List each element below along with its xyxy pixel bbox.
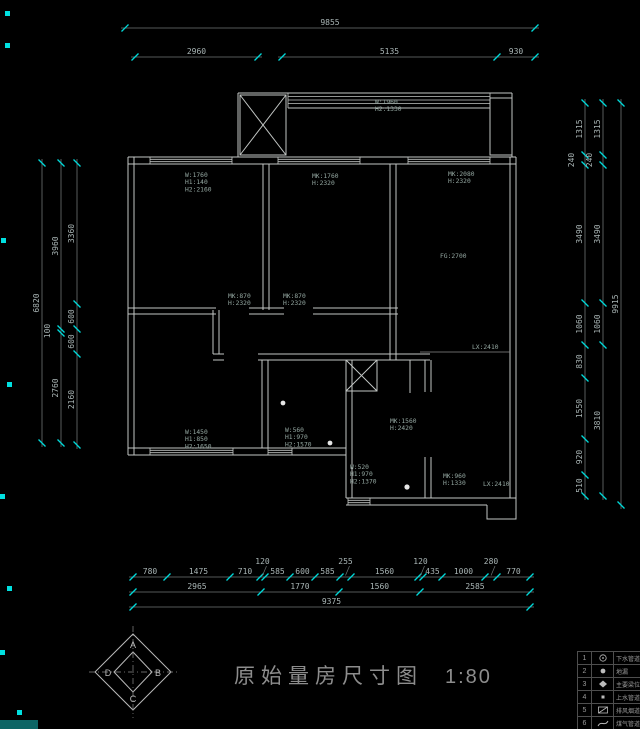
dimension-value: 585 xyxy=(270,567,285,576)
wall-left xyxy=(128,157,134,455)
dimension-value: 930 xyxy=(509,47,524,56)
dimension-value: 710 xyxy=(238,567,253,576)
label-line: H2:1330 xyxy=(375,106,402,113)
legend-row-number: 3 xyxy=(578,678,592,690)
window-small xyxy=(268,448,292,455)
drain-dot xyxy=(281,401,286,406)
label-line: H1:140 xyxy=(185,179,208,186)
window-bath xyxy=(348,498,370,505)
grip-points xyxy=(0,11,22,715)
label-small-door: MK:960H:1330 xyxy=(443,473,466,487)
label-line: H:2320 xyxy=(283,300,306,307)
dimension-value: 1560 xyxy=(370,582,389,591)
shaft-hatch xyxy=(240,95,286,155)
label-bath-window: W:520H1:970H2:1370 xyxy=(350,464,377,485)
grip-icon xyxy=(7,382,12,387)
dimension-value: 120 xyxy=(413,557,428,566)
dimension-leader xyxy=(263,566,267,576)
dimension-value: 120 xyxy=(255,557,270,566)
dimension-value: 240 xyxy=(585,153,594,168)
dimension-value: 435 xyxy=(425,567,440,576)
dimension-value: 585 xyxy=(320,567,335,576)
drawing-scale: 1:80 xyxy=(445,666,492,689)
dimension-value: 510 xyxy=(575,478,584,493)
legend-symbol-cell xyxy=(592,704,614,716)
legend-row: 5排风烟道 xyxy=(578,704,640,717)
grip-icon xyxy=(0,494,5,499)
wall-top xyxy=(128,157,516,164)
grip-icon xyxy=(17,710,22,715)
dimension-value: 600 xyxy=(67,334,76,349)
window-bed2 xyxy=(278,157,360,164)
grip-icon xyxy=(7,586,12,591)
wall-h-lower xyxy=(213,354,430,360)
drawing-title-row: 原始量房尺寸图 1:80 xyxy=(234,660,494,690)
dimension-value: 3960 xyxy=(51,236,60,255)
dim-top-overall: 9855 xyxy=(121,18,539,32)
compass-letter-b: B xyxy=(155,668,161,678)
compass-letter-a: A xyxy=(130,640,136,650)
label-line: LX:2410 xyxy=(483,481,510,488)
dimension-value: 1000 xyxy=(454,567,473,576)
legend-symbol-cell xyxy=(592,691,614,703)
legend-row-number: 1 xyxy=(578,652,592,664)
label-bed2-door: MK:870H:2320 xyxy=(283,293,306,307)
grip-icon xyxy=(5,11,10,16)
dimension-value: 600 xyxy=(295,567,310,576)
legend-symbol-cell xyxy=(592,717,614,729)
label-line: MK:1560 xyxy=(390,418,417,425)
dimension-value: 2960 xyxy=(187,47,206,56)
legend-symbol-cell xyxy=(592,678,614,690)
cad-viewport: 9855296051359306820396010027603360600600… xyxy=(0,0,640,729)
label-line: MK:1760 xyxy=(312,173,339,180)
label-line: H1:850 xyxy=(185,436,208,443)
dimension-value: 1560 xyxy=(375,567,394,576)
legend-row-label: 上水管道 xyxy=(614,691,640,703)
legend-row-number: 5 xyxy=(578,704,592,716)
dim-bottom-row2: 2965177015602585 xyxy=(129,582,534,596)
label-line: H2:1650 xyxy=(185,443,212,450)
label-beam-living: LX:2410 xyxy=(472,344,499,351)
label-beam-bottom: LX:2410 xyxy=(483,481,510,488)
dim-top-left: 2960 xyxy=(131,47,262,61)
beam-icon xyxy=(596,679,610,689)
dimension-value: 3490 xyxy=(593,224,602,243)
label-line: LX:2410 xyxy=(472,344,499,351)
dimension-value: 1060 xyxy=(575,314,584,333)
label-line: W:1960 xyxy=(375,99,398,106)
legend-symbol-cell xyxy=(592,665,614,677)
label-kitchen-door: MK:1560H:2420 xyxy=(390,418,417,432)
legend-table: 1下水管道2地漏3主要梁位置4上水管道5排风烟道6煤气管道 xyxy=(577,651,640,729)
taskbar-fragment xyxy=(0,720,38,729)
dimension-value: 1315 xyxy=(575,119,584,138)
dimension-value: 2585 xyxy=(465,582,484,591)
label-line: FG:2700 xyxy=(440,253,467,260)
wall-bath-right xyxy=(425,360,431,498)
label-living-window: MK:2080H:2320 xyxy=(448,171,475,185)
floorplan-canvas: 9855296051359306820396010027603360600600… xyxy=(0,0,640,729)
grip-icon xyxy=(0,650,5,655)
drawing-title: 原始量房尺寸图 xyxy=(234,660,423,690)
water-pipe-icon xyxy=(596,692,610,702)
dim-left-inner: 33606006002160 xyxy=(67,159,81,449)
label-line: H:1330 xyxy=(443,480,466,487)
label-line: H1:970 xyxy=(285,434,308,441)
drain-dot xyxy=(328,441,333,446)
grip-icon xyxy=(5,43,10,48)
grip-icon xyxy=(1,238,6,243)
dimension-value: 5135 xyxy=(380,47,399,56)
label-line: MK:870 xyxy=(228,293,251,300)
dim-top-right: 5135930 xyxy=(278,47,539,61)
label-line: MK:870 xyxy=(283,293,306,300)
label-line: H1:970 xyxy=(350,471,373,478)
drain-dot xyxy=(404,484,409,489)
dimension-value: 830 xyxy=(575,354,584,369)
legend-row: 4上水管道 xyxy=(578,691,640,704)
wall-bottom-left xyxy=(128,448,346,455)
label-bed1-door: MK:870H:2320 xyxy=(228,293,251,307)
label-line: H:2420 xyxy=(390,425,413,432)
label-line: H2:2160 xyxy=(185,186,212,193)
legend-row: 1下水管道 xyxy=(578,652,640,665)
legend-row-number: 4 xyxy=(578,691,592,703)
label-line: H:2320 xyxy=(228,300,251,307)
label-small-window: W:560H1:970H2:1570 xyxy=(285,427,312,448)
dim-right-mid: 1315240349010603810 xyxy=(585,99,607,500)
dimension-value: 2160 xyxy=(67,390,76,409)
compass-logo: A B C D xyxy=(89,626,177,718)
wall-notch xyxy=(487,505,516,519)
dimension-value: 9855 xyxy=(320,18,339,27)
legend-row-label: 地漏 xyxy=(614,665,640,677)
label-line: W:1450 xyxy=(185,429,208,436)
legend-row: 2地漏 xyxy=(578,665,640,678)
legend-row-label: 下水管道 xyxy=(614,652,640,664)
dimension-value: 600 xyxy=(67,309,76,324)
label-bed1-window: W:1760H1:140H2:2160 xyxy=(185,172,212,193)
label-line: W:1760 xyxy=(185,172,208,179)
label-line: H:2320 xyxy=(448,178,471,185)
legend-row-label: 煤气管道 xyxy=(614,717,640,729)
gas-pipe-icon xyxy=(596,718,610,728)
dimension-value: 280 xyxy=(484,557,499,566)
drain-pipe-icon xyxy=(596,653,610,663)
vent-duct-icon xyxy=(596,705,610,715)
dimension-value: 2760 xyxy=(51,378,60,397)
window-bed1 xyxy=(150,157,232,164)
dim-left-outer: 6820 xyxy=(32,159,46,447)
dimension-leader xyxy=(346,566,350,576)
dimension-value: 3490 xyxy=(575,224,584,243)
dimension-value: 770 xyxy=(506,567,521,576)
dimension-leader xyxy=(421,566,425,576)
dimension-value: 9375 xyxy=(322,597,341,606)
label-west-window: W:1450H1:850H2:1650 xyxy=(185,429,212,450)
legend-row: 6煤气管道 xyxy=(578,717,640,729)
dimension-value: 2965 xyxy=(187,582,206,591)
label-line: W:520 xyxy=(350,464,369,471)
dim-bottom-overall: 9375 xyxy=(129,597,534,611)
walls xyxy=(128,93,516,519)
window-living xyxy=(408,157,490,164)
wall-hall-stub xyxy=(213,310,219,354)
label-line: H2:1370 xyxy=(350,478,377,485)
wall-lower-mid xyxy=(262,360,268,448)
dimension-value: 3810 xyxy=(593,411,602,430)
label-ceiling-height: FG:2700 xyxy=(440,253,467,260)
compass-letter-d: D xyxy=(105,668,112,678)
label-line: H:2320 xyxy=(312,180,335,187)
wall-bed2-living xyxy=(390,164,396,360)
balcony-column xyxy=(490,98,512,155)
dim-right-outer: 9915 xyxy=(611,99,625,509)
dimension-value: 255 xyxy=(338,557,353,566)
dimension-value: 1770 xyxy=(290,582,309,591)
dim-left-mid: 39601002760 xyxy=(43,159,65,447)
label-balcony-window: W:1960H2:1330 xyxy=(375,99,402,113)
label-line: MK:2080 xyxy=(448,171,475,178)
dim-bottom-row1: 7801475710120585600585255156012043510002… xyxy=(129,557,534,581)
dimension-value: 920 xyxy=(575,450,584,465)
dimension-value: 1475 xyxy=(189,567,208,576)
wall-bottom-right xyxy=(346,498,516,505)
wall-right xyxy=(510,157,516,505)
legend-row-number: 6 xyxy=(578,717,592,729)
legend-row-label: 主要梁位置 xyxy=(614,678,640,690)
duct-hatch xyxy=(346,360,377,391)
floor-drain-icon xyxy=(596,666,610,676)
dimension-value: 1060 xyxy=(593,314,602,333)
dimension-value: 9915 xyxy=(611,294,620,313)
label-line: MK:960 xyxy=(443,473,466,480)
compass-letter-c: C xyxy=(130,694,137,704)
dimension-value: 100 xyxy=(43,324,52,339)
dimension-value: 6820 xyxy=(32,293,41,312)
label-line: H2:1570 xyxy=(285,441,312,448)
wall-bed1-bed2 xyxy=(263,164,269,310)
label-bed2-window: MK:1760H:2320 xyxy=(312,173,339,187)
dimension-leader xyxy=(491,566,495,576)
legend-row-label: 排风烟道 xyxy=(614,704,640,716)
dimension-value: 1550 xyxy=(575,399,584,418)
dimension-value: 3360 xyxy=(67,224,76,243)
dimension-value: 1315 xyxy=(593,119,602,138)
label-line: W:560 xyxy=(285,427,304,434)
dimension-value: 780 xyxy=(143,567,158,576)
legend-row-number: 2 xyxy=(578,665,592,677)
dimension-value: 240 xyxy=(567,153,576,168)
legend-symbol-cell xyxy=(592,652,614,664)
legend-row: 3主要梁位置 xyxy=(578,678,640,691)
